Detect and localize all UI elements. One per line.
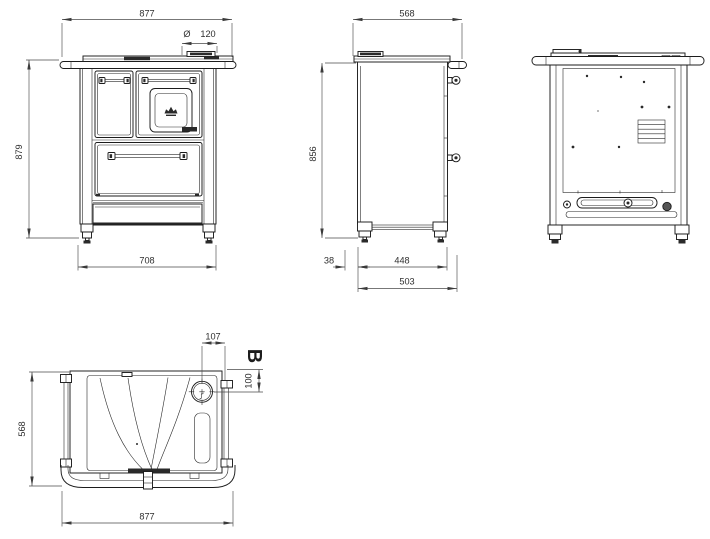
side-rail-cap bbox=[448, 62, 467, 69]
front-view: 877 Ø 120 879 708 bbox=[14, 9, 236, 271]
front-legs bbox=[81, 224, 215, 244]
dim-front-bottom-width: 708 bbox=[78, 245, 216, 271]
front-body bbox=[80, 69, 216, 225]
side-door-knobs bbox=[448, 76, 461, 162]
firebox-door-handle bbox=[99, 78, 130, 84]
damper-mark bbox=[200, 393, 205, 399]
dim-side-height: 856 bbox=[308, 63, 358, 238]
dim-label: 568 bbox=[17, 421, 27, 436]
oven-door-handle bbox=[142, 78, 196, 84]
ash-drawer bbox=[91, 203, 205, 226]
dim-label: 448 bbox=[394, 256, 409, 266]
dim-side-leg-span: 448 bbox=[358, 247, 447, 271]
oven-window-badge bbox=[182, 127, 197, 132]
dim-top-width: 877 bbox=[62, 491, 233, 527]
dim-label: 877 bbox=[139, 9, 154, 19]
dim-label: 856 bbox=[308, 146, 318, 161]
side-body bbox=[358, 63, 448, 225]
lower-door-handle bbox=[108, 153, 187, 160]
top-surface bbox=[70, 371, 222, 473]
section-letter: B bbox=[243, 349, 265, 363]
stove-dimension-drawing: 877 Ø 120 879 708 bbox=[0, 0, 710, 539]
dim-label: 100 bbox=[244, 373, 254, 388]
dim-side-back-offset: 38 bbox=[324, 247, 370, 292]
side-view: 568 856 38 448 503 bbox=[308, 9, 467, 293]
diameter-symbol: Ø bbox=[183, 29, 190, 39]
technical-drawing-sheet: 877 Ø 120 879 708 bbox=[0, 0, 710, 539]
back-legs bbox=[548, 225, 689, 244]
oven-window bbox=[150, 89, 197, 133]
dim-label: 879 bbox=[14, 144, 24, 159]
dim-front-height: 879 bbox=[14, 60, 79, 238]
back-towel-rail bbox=[532, 57, 704, 66]
warming-slot bbox=[195, 413, 211, 463]
back-view bbox=[532, 50, 704, 244]
front-cooktop bbox=[83, 52, 233, 63]
dim-label: 568 bbox=[399, 9, 414, 19]
top-view: 107 B 100 568 877 bbox=[17, 332, 265, 527]
side-legs bbox=[358, 222, 448, 243]
side-cooktop bbox=[354, 52, 467, 69]
dim-label: 708 bbox=[139, 256, 154, 266]
dim-label: 120 bbox=[200, 29, 215, 39]
flue-outlet bbox=[189, 379, 215, 405]
lower-oven-door bbox=[95, 143, 202, 197]
top-rails bbox=[61, 375, 236, 490]
dim-label: 38 bbox=[324, 256, 334, 266]
back-vent-louvre bbox=[638, 120, 665, 143]
oven-door bbox=[136, 71, 202, 138]
firebox-door bbox=[95, 71, 133, 138]
dim-label: 503 bbox=[399, 277, 414, 287]
dim-label: 877 bbox=[139, 512, 154, 522]
back-damper-controls bbox=[564, 198, 678, 218]
section-label: B bbox=[243, 349, 265, 363]
front-towel-rail bbox=[60, 62, 236, 69]
brand-emblem-icon bbox=[165, 107, 178, 114]
dim-label: 107 bbox=[205, 332, 220, 342]
